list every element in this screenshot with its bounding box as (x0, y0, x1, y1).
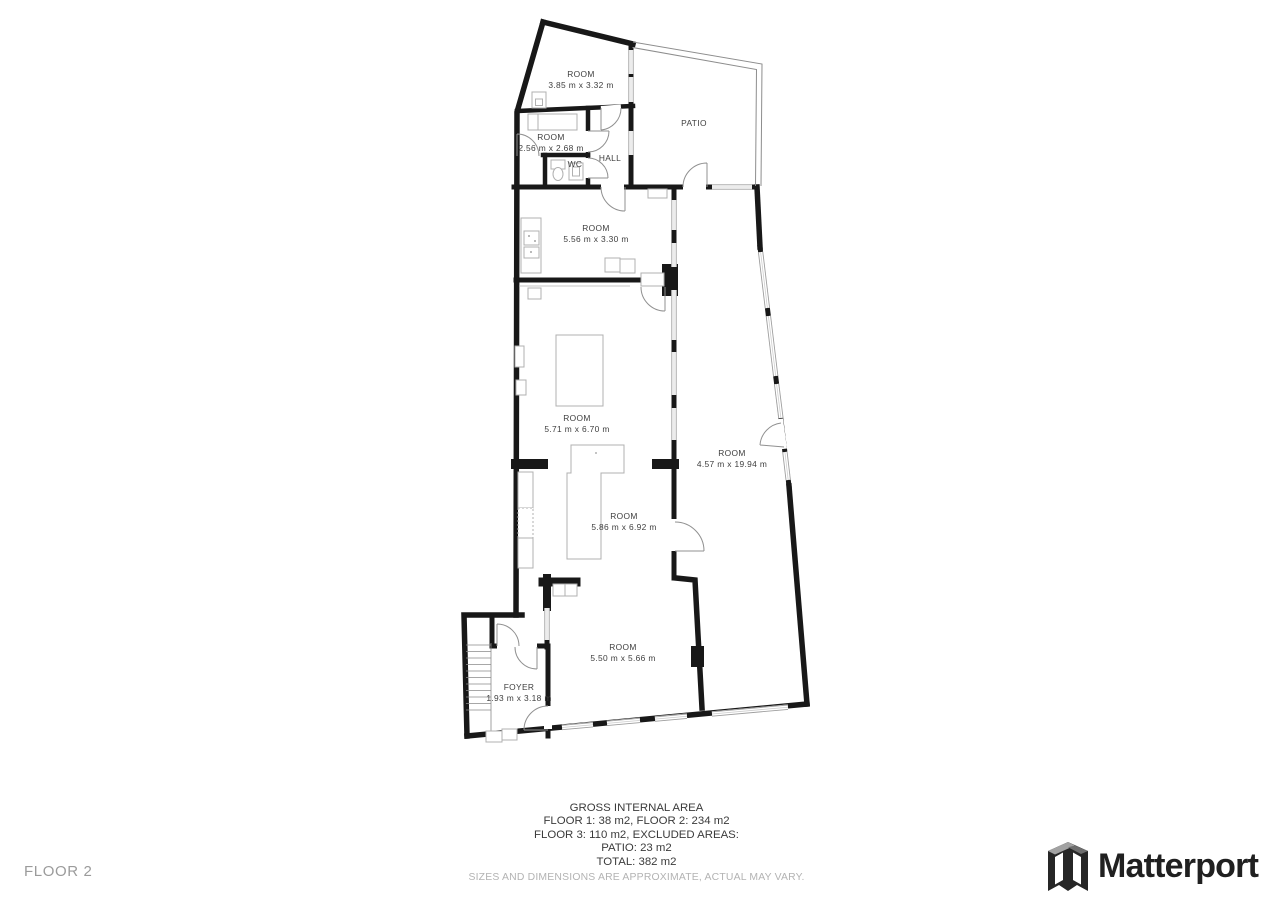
room-457-dims: 4.57 m x 19.94 m (697, 459, 767, 469)
foyer-dims: 1.93 m x 3.18 m (486, 693, 551, 703)
table-room-586 (567, 445, 624, 559)
bed-room-256 (528, 114, 577, 130)
floor-label: FLOOR 2 (24, 863, 92, 880)
gross-internal-area-title: GROSS INTERNAL AREA (0, 802, 1273, 815)
room-571-label: ROOM (563, 413, 590, 423)
room-550-label: ROOM (609, 642, 636, 652)
foyer-unit (502, 729, 517, 740)
cabinet (518, 538, 533, 568)
room-556-dims: 5.56 m x 3.30 m (563, 234, 628, 244)
room-256-dims: 2.56 m x 2.68 m (518, 143, 583, 153)
floor-1-2-areas: FLOOR 1: 38 m2, FLOOR 2: 234 m2 (0, 815, 1273, 828)
cabinet (518, 472, 533, 508)
floorplan-svg: ROOM 3.85 m x 3.32 m ROOM 2.56 m x 2.68 … (0, 0, 1273, 900)
room-256-label: ROOM (537, 132, 564, 142)
door-panel (641, 273, 664, 286)
matterport-m-icon (1040, 840, 1089, 892)
patio-label: PATIO (681, 118, 707, 128)
room-586-dims: 5.86 m x 6.92 m (591, 522, 656, 532)
room-385-label: ROOM (567, 69, 594, 79)
brand-wordmark: Matterport (1098, 847, 1258, 886)
cabinet (518, 508, 533, 538)
staircase (466, 643, 491, 733)
foyer-unit (486, 731, 502, 742)
patio-outline (633, 42, 763, 186)
room-571-dims: 5.71 m x 6.70 m (544, 424, 609, 434)
room-550-dims: 5.50 m x 5.66 m (590, 653, 655, 663)
foyer-label: FOYER (504, 682, 535, 692)
room-385-dims: 3.85 m x 3.32 m (548, 80, 613, 90)
table-room-571 (556, 335, 603, 406)
doors (497, 108, 784, 730)
room-labels: ROOM 3.85 m x 3.32 m ROOM 2.56 m x 2.68 … (486, 69, 767, 703)
door-gaps (497, 108, 783, 729)
room-556-label: ROOM (582, 223, 609, 233)
brand-logo: Matterport (1040, 840, 1258, 892)
room-457-label: ROOM (718, 448, 745, 458)
hall-label: HALL (599, 153, 621, 163)
sink-room-571 (528, 288, 541, 299)
wc-label: WC (568, 159, 583, 169)
room-586-label: ROOM (610, 511, 637, 521)
